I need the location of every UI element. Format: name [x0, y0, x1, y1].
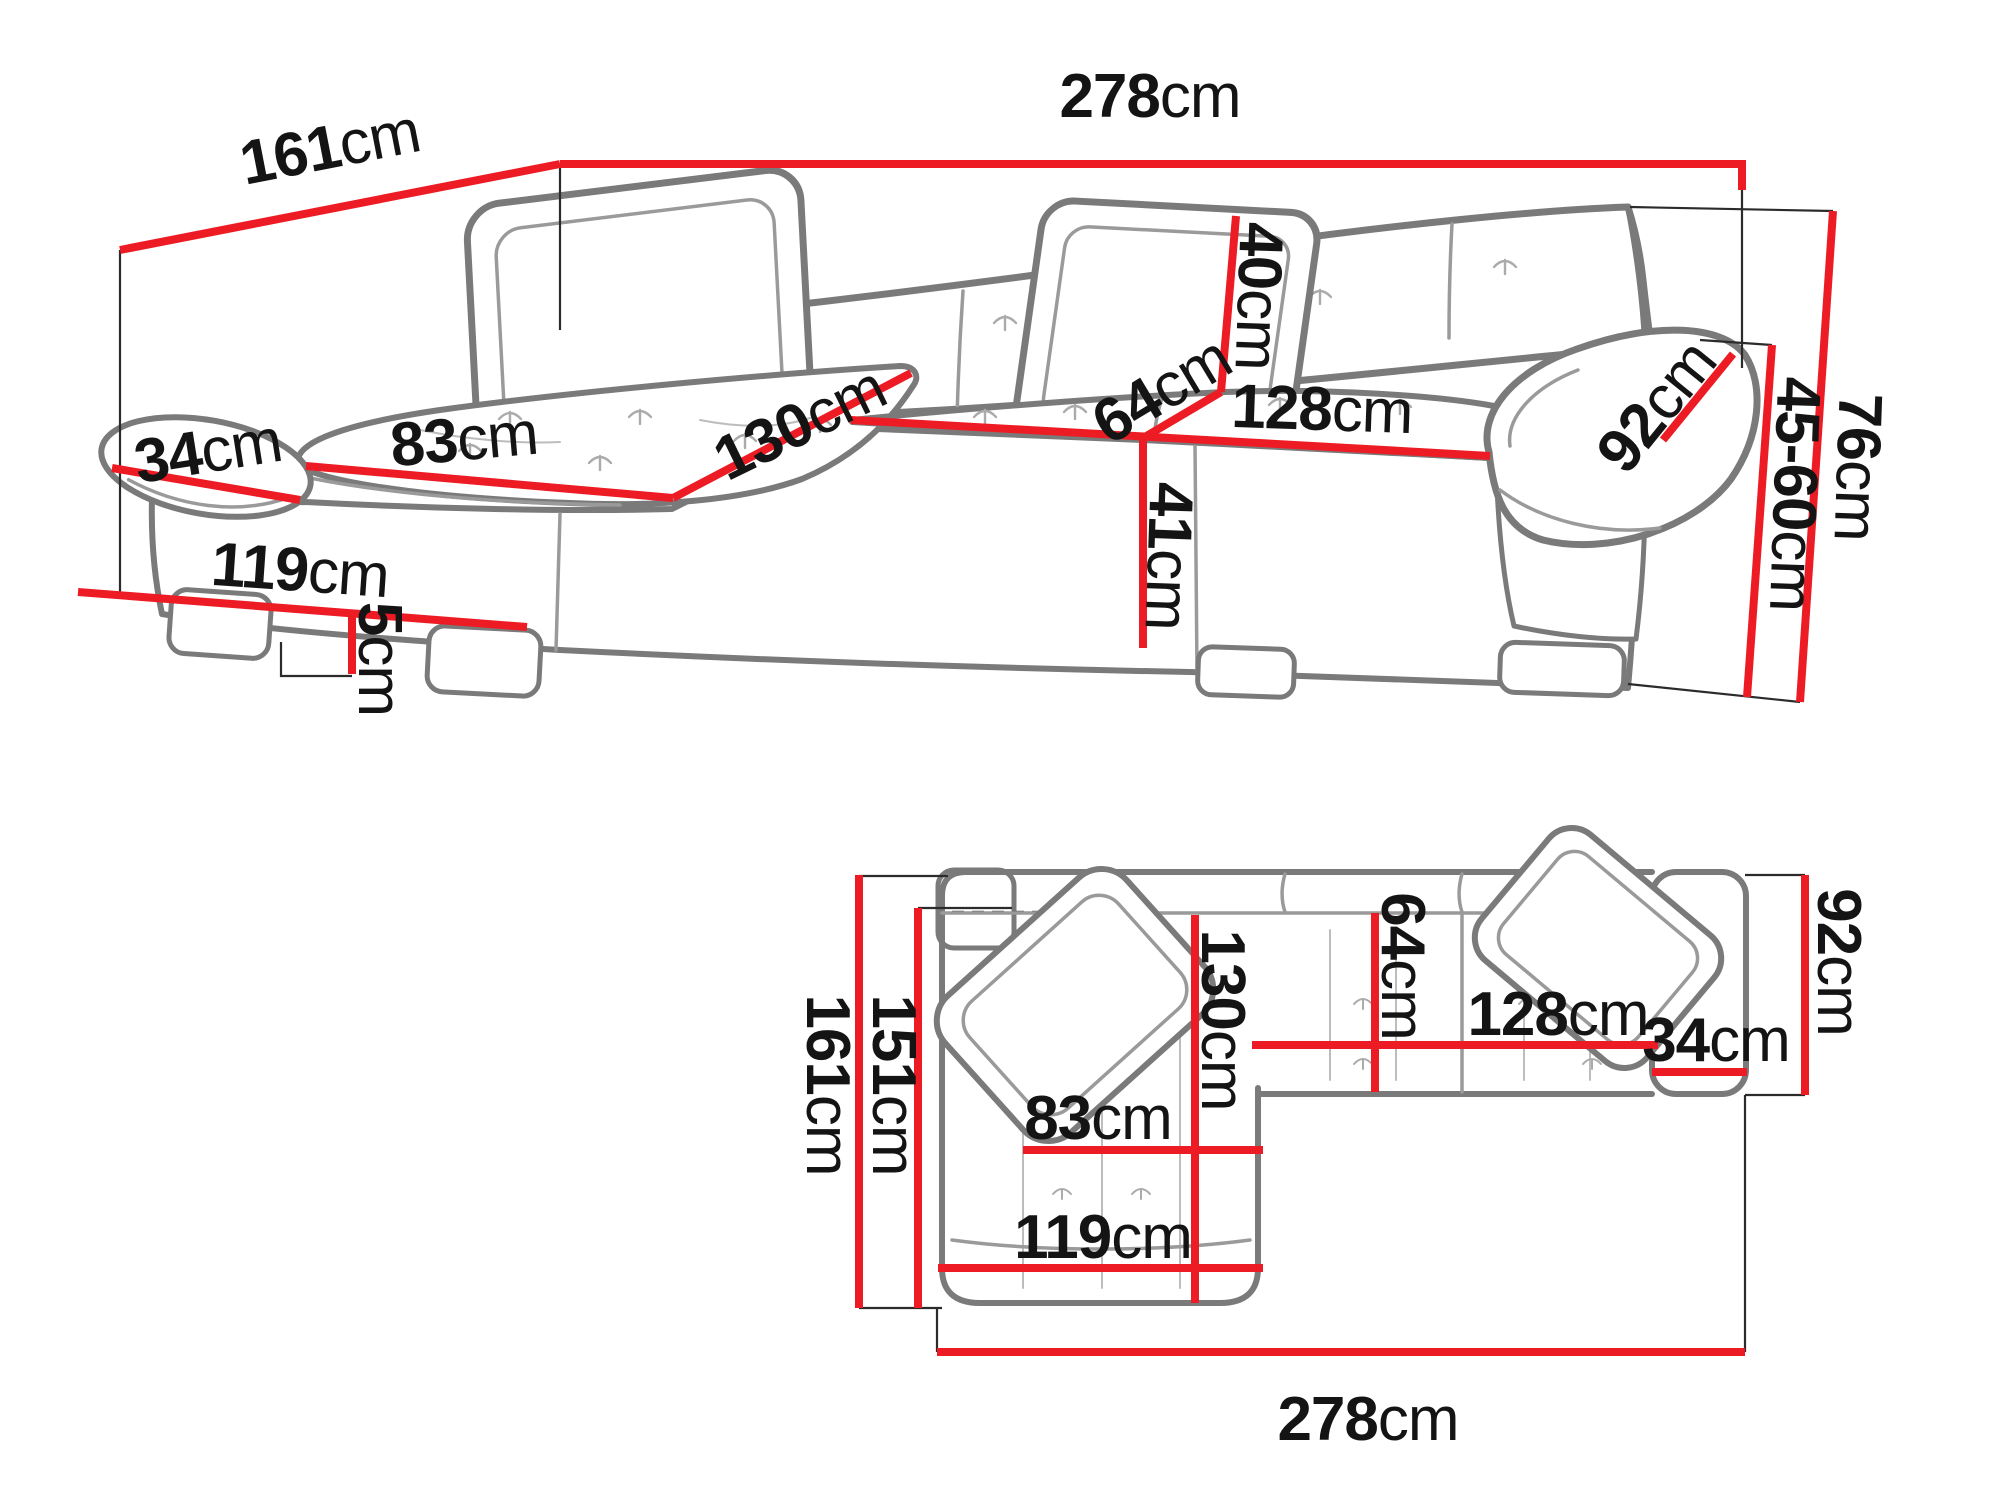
dim-label-278-plan: 278cm	[1277, 1389, 1458, 1451]
dim-label-83-plan: 83cm	[1024, 1088, 1172, 1150]
dim-label-45-60-perspective: 45-60cm	[1759, 376, 1829, 612]
dim-label-119-perspective: 119cm	[209, 534, 391, 608]
dim-label-119-plan: 119cm	[1014, 1207, 1192, 1269]
dim-label-34-plan: 34cm	[1642, 1010, 1790, 1072]
dim-label-41-perspective: 41cm	[1134, 481, 1201, 631]
dim-label-161-plan: 161cm	[796, 994, 858, 1175]
dim-label-5-perspective: 5cm	[348, 602, 410, 716]
dim-label-83-perspective: 83cm	[388, 403, 540, 478]
perspective-sofa-drawing	[93, 166, 1757, 697]
dim-label-151-plan: 151cm	[862, 994, 924, 1175]
dim-label-128-perspective: 128cm	[1230, 376, 1413, 444]
dim-label-64-plan: 64cm	[1371, 892, 1433, 1040]
dim-label-278-perspective: 278cm	[1059, 66, 1240, 128]
dim-label-130-plan: 130cm	[1191, 929, 1253, 1110]
dim-label-76-perspective: 76cm	[1823, 392, 1890, 542]
dim-label-40-perspective: 40cm	[1224, 221, 1291, 371]
dim-label-92-plan: 92cm	[1807, 888, 1869, 1036]
dim-label-128-plan: 128cm	[1467, 984, 1648, 1046]
sofa-dimension-diagram: 161cm 278cm 34cm 83cm 130cm 40cm 64cm 12…	[0, 0, 2000, 1500]
diagram-drawing	[0, 0, 2000, 1500]
